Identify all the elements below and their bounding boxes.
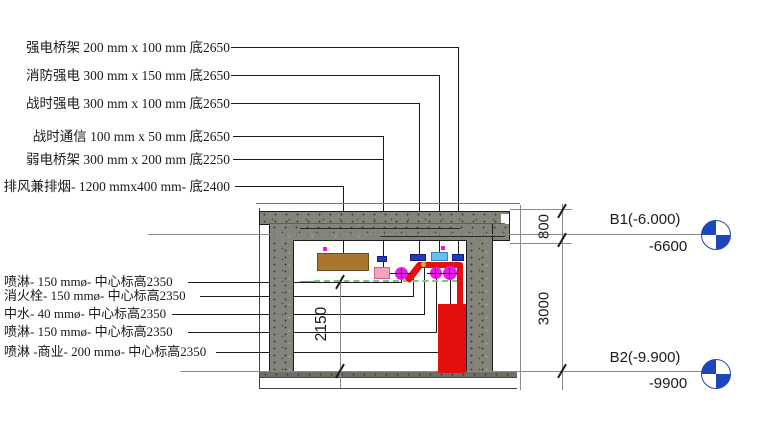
exhaust-duct-section[interactable] [317,253,369,271]
slab-edge [492,240,510,241]
annotation-wartime-power-tray[interactable]: 战时强电 300 mm x 100 mm 底2650 [26,96,230,111]
leader-line [424,267,425,315]
wall-edge [269,224,270,371]
leader-line [233,136,383,137]
section-boundary-left [259,208,260,388]
annotation-strong-power-tray[interactable]: 强电桥架 200 mm x 100 mm 底2650 [26,40,230,55]
pipe-centerline-green [314,280,458,282]
leader-line [231,47,459,48]
slab-hatch-line [300,228,460,229]
slab-edge [259,211,510,212]
wall-edge [293,240,294,371]
level-marker-icon[interactable] [701,220,731,250]
leader-line [231,103,420,104]
annotation-hydrant[interactable]: 消火栓- 150 mmø- 中心标高2350 [4,289,186,303]
slab-hatch-line [380,236,505,237]
hydrant-pipe-drop[interactable] [457,263,463,307]
annotation-wartime-comm-tray[interactable]: 战时通信 100 mm x 50 mm 底2650 [33,129,230,144]
sprinkler-head-mark [323,247,327,251]
leader-line [233,159,383,160]
wall-edge [492,224,493,371]
leader-line [235,186,344,187]
level-b1-label[interactable]: B1(-6.000) [600,211,690,228]
ceiling-beam [269,224,510,240]
section-boundary-bottom [259,388,517,389]
level-marker-icon[interactable] [701,359,731,389]
level-b2-elevation[interactable]: -9900 [638,375,698,392]
leader-line [383,136,384,268]
section-drawing: 强电桥架 200 mm x 100 mm 底2650 消防强电 300 mm x… [0,0,759,432]
floor-edge [260,377,517,378]
annotation-exhaust-duct[interactable]: 排风兼排烟- 1200 mmx400 mm- 底2400 [4,179,231,194]
annotation-sprinkler-1[interactable]: 喷淋- 150 mmø- 中心标高2350 [4,275,173,289]
level-b2-label[interactable]: B2(-9.900) [600,349,690,366]
annotation-reclaimed-water[interactable]: 中水- 40 mmø- 中心标高2350 [4,307,166,321]
wall-right [466,240,492,371]
fire-power-tray-section[interactable] [431,252,448,261]
leader-line [188,282,402,283]
wartime-power-tray-section[interactable] [410,254,426,261]
leader-line [231,75,440,76]
leader-line [172,314,425,315]
reclaimed-water-pipe-section[interactable] [421,262,426,267]
wartime-comm-tray-section[interactable] [377,256,387,262]
wall-left [269,240,293,371]
level-b1-elevation[interactable]: -6600 [638,238,698,255]
leader-line [200,296,413,297]
annotation-weak-power-tray[interactable]: 弱电桥架 300 mm x 200 mm 底2250 [26,152,230,167]
slab-edge [293,240,466,241]
slab-edge [509,211,510,240]
pipe-centerline-cross [449,268,450,279]
section-boundary-top [256,203,520,204]
leader-line [436,278,437,333]
hydrant-riser-pipe[interactable] [438,304,466,373]
slab-edge [259,224,269,225]
level-line-b1 [148,234,702,235]
annotation-fire-power-tray[interactable]: 消防强电 300 mm x 150 mm 底2650 [26,68,230,83]
pipe-centerline-cross [427,273,459,274]
strong-power-tray-section[interactable] [452,254,464,261]
slab-seam [269,223,505,224]
dim-3000[interactable]: 3000 [536,281,553,337]
weak-power-tray-section[interactable] [374,267,390,279]
dim-800[interactable]: 800 [536,207,553,247]
annotation-sprinkler-commercial[interactable]: 喷淋 -商业- 200 mmø- 中心标高2350 [4,345,206,359]
leader-line [216,352,450,353]
dim-line-vertical [562,204,563,390]
wall-edge [466,240,467,371]
pipe-centerline-cross [401,269,402,278]
slab-edge [259,211,260,224]
sprinkler-head-mark [441,246,445,250]
annotation-sprinkler-2[interactable]: 喷淋- 150 mmø- 中心标高2350 [4,325,173,339]
pipe-centerline-cross [435,269,436,278]
dim-2150[interactable]: 2150 [313,296,331,352]
section-boundary-right [520,205,521,390]
